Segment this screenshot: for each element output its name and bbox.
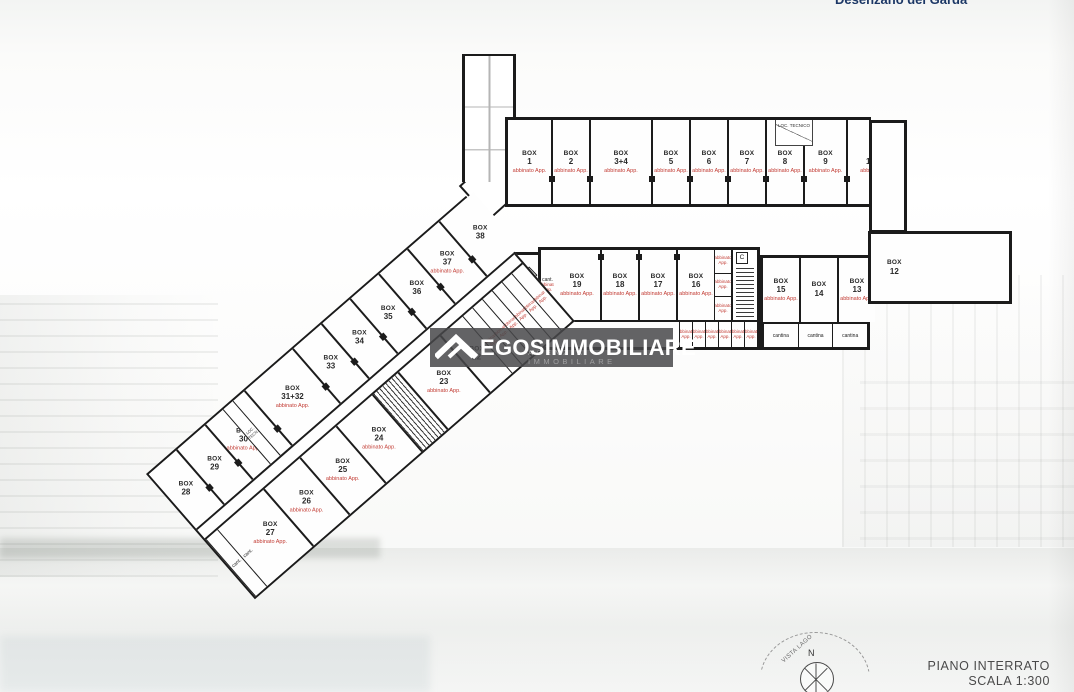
photo-pool-strip: [0, 636, 430, 692]
room-prefix: BOX: [473, 225, 488, 232]
stair-c-hatch: [736, 266, 754, 317]
paired-apartment-note: abbinato App.: [705, 330, 718, 340]
paired-apartment-note: abbinato App.: [678, 291, 714, 298]
room-number: 6: [707, 157, 711, 166]
room-box-12: BOX 12: [868, 231, 1012, 304]
room-number: 34: [355, 337, 364, 346]
room-prefix: BOX: [778, 150, 793, 157]
room-label: BOX 23 abbinato App.: [426, 370, 462, 394]
cellar-cell: abbinato App.: [715, 273, 731, 297]
north-label: N: [808, 648, 815, 658]
room-prefix: BOX: [614, 150, 629, 157]
room-label: BOX 6 abbinato App.: [691, 150, 727, 174]
room-label: BOX 19 abbinato App.: [559, 273, 595, 297]
paired-apartment-note: abbinato App.: [429, 268, 465, 275]
room-label: BOX 24 abbinato App.: [361, 427, 397, 451]
middle-row: cant. abbinato App. BOX 19 abbinato App.…: [541, 250, 757, 320]
agency-roof-icon: [435, 331, 479, 363]
room-label: BOX 18 abbinato App.: [602, 273, 638, 297]
agency-subtitle: AGENZIA IMMOBILIARE: [528, 348, 673, 366]
stairwell-c: C: [731, 250, 757, 320]
room-label: BOX 9 abbinato App.: [808, 150, 844, 174]
cantina-cell: cantina: [798, 324, 833, 347]
room-label: BOX 35: [370, 305, 406, 323]
paired-apartment-note: abbinato App.: [289, 507, 325, 514]
compass-circle: [800, 662, 834, 692]
cellar-label: cant.: [230, 557, 242, 569]
small-cellar-column: abbinato App. abbinato App. abbinato App…: [714, 250, 731, 320]
room-label: BOX 14: [801, 281, 837, 299]
cellar-cell: abbinato App.: [731, 322, 744, 347]
room-prefix: BOX: [522, 150, 537, 157]
cantina-row: cantina cantina cantina: [763, 322, 867, 347]
room-label: BOX 8 abbinato App.: [767, 150, 803, 174]
room-label: BOX 37 abbinato App.: [429, 250, 465, 274]
room-box: BOX 3+4 abbinato App.: [589, 120, 651, 204]
room-number: 37: [443, 258, 452, 267]
paired-apartment-note: abbinato App.: [553, 168, 589, 175]
room-prefix: BOX: [812, 281, 827, 288]
room-prefix: BOX: [570, 273, 585, 280]
room-number: 1: [527, 157, 531, 166]
paired-apartment-note: abbinato App.: [731, 330, 744, 340]
room-number: 36: [413, 287, 422, 296]
technical-room-top: LOC. TECNICO: [775, 120, 813, 146]
room-box: BOX 15 abbinato App.: [763, 258, 799, 322]
middle-wing-right: BOX 15 abbinato App. BOX 14 BOX 13 abbin…: [760, 255, 870, 350]
paired-apartment-note: abbinato App.: [325, 476, 361, 483]
paired-apartment-note: abbinato App.: [767, 168, 803, 175]
room-number: 29: [210, 463, 219, 472]
room-number: 9: [823, 157, 827, 166]
paired-apartment-note: abbinato App.: [512, 168, 548, 175]
paired-apartment-note: abbinato App.: [274, 403, 310, 410]
cantina-label: cantina: [773, 333, 789, 339]
room-number: 13: [853, 285, 862, 294]
room-number: 23: [440, 378, 449, 387]
room-number: 31+32: [281, 392, 303, 401]
photo-hedge-strip: [0, 538, 380, 558]
room-number: 2: [569, 157, 573, 166]
room-label: BOX 7 abbinato App.: [729, 150, 765, 174]
room-prefix: BOX: [564, 150, 579, 157]
room-number: 38: [476, 232, 485, 241]
room-box: BOX 5 abbinato App.: [651, 120, 689, 204]
room-number: 33: [326, 362, 335, 371]
room-label: BOX 34: [342, 330, 378, 348]
scanned-floor-plan-page: BOX 1 abbinato App. BOX 2 abbinato App. …: [0, 0, 1074, 692]
room-prefix: BOX: [774, 278, 789, 285]
floor-title: PIANO INTERRATO: [880, 659, 1050, 674]
cellar-cell: abbinato App.: [715, 296, 731, 320]
paired-apartment-note: abbinato App.: [715, 280, 731, 290]
room-number: 15: [777, 285, 786, 294]
cantina-cell: cantina: [832, 324, 867, 347]
title-block: PIANO INTERRATO SCALA 1:300: [880, 659, 1050, 689]
scale-label: SCALA 1:300: [880, 674, 1050, 689]
location-title: Desenzano del Garda: [835, 0, 1055, 7]
room-number: 8: [783, 157, 787, 166]
paired-apartment-note: abbinato App.: [744, 330, 757, 340]
top-wing-right-cap: [869, 120, 907, 233]
room-prefix: BOX: [440, 250, 455, 257]
paired-apartment-note: abbinato App.: [808, 168, 844, 175]
room-prefix: BOX: [352, 330, 367, 337]
photo-underlay-right-2: [860, 360, 1074, 540]
room-number: 24: [375, 434, 384, 443]
room-box: BOX 18 abbinato App.: [600, 250, 638, 320]
room-box: BOX 14: [799, 258, 837, 322]
room-box: BOX 2 abbinato App.: [551, 120, 589, 204]
cellar-label: cant.: [242, 547, 254, 559]
paired-apartment-note: abbinato App.: [253, 539, 289, 546]
photo-underlay-left: [0, 295, 218, 577]
room-prefix: BOX: [818, 150, 833, 157]
paired-apartment-note: abbinato App.: [603, 168, 639, 175]
top-wing: BOX 1 abbinato App. BOX 2 abbinato App. …: [505, 117, 871, 207]
paired-apartment-note: abbinato App.: [691, 168, 727, 175]
room-label: BOX 25 abbinato App.: [325, 458, 361, 482]
room-label: BOX 5 abbinato App.: [653, 150, 689, 174]
room-prefix: BOX: [850, 278, 865, 285]
room-label: BOX 2 abbinato App.: [553, 150, 589, 174]
room-prefix: BOX: [410, 280, 425, 287]
middle-right-row: BOX 15 abbinato App. BOX 14 BOX 13 abbin…: [763, 258, 867, 322]
paired-apartment-note: abbinato App.: [559, 291, 595, 298]
room-prefix: BOX: [179, 481, 194, 488]
room-prefix: BOX: [664, 150, 679, 157]
room-box: BOX 16 abbinato App.: [676, 250, 714, 320]
room-number: 19: [573, 280, 582, 289]
paired-apartment-note: abbinato App.: [718, 330, 731, 340]
scan-edge-shadow: [1048, 0, 1074, 692]
paired-apartment-note: abbinato App.: [361, 444, 397, 451]
room-prefix: BOX: [651, 273, 666, 280]
cantina-cell: cantina: [763, 324, 798, 347]
room-box: BOX 7 abbinato App.: [727, 120, 765, 204]
room-label: BOX 36: [399, 280, 435, 298]
cantina-label: cantina: [842, 333, 858, 339]
room-label: BOX 3+4 abbinato App.: [603, 150, 639, 174]
room-label: BOX 1 abbinato App.: [512, 150, 548, 174]
paired-apartment-note: abbinato App.: [729, 168, 765, 175]
room-label: BOX 28: [168, 481, 204, 499]
cellar-cell: abbinato App.: [744, 322, 757, 347]
room-number: 3+4: [614, 157, 628, 166]
room-number: 7: [745, 157, 749, 166]
room-box: BOX 1 abbinato App.: [508, 120, 551, 204]
paired-apartment-note: abbinato App.: [640, 291, 676, 298]
cellar-cell: abbinato App.: [705, 322, 718, 347]
paired-apartment-note: abbinato App.: [715, 304, 731, 314]
cellar-cell: abbinato App.: [715, 250, 731, 273]
room-prefix: BOX: [285, 385, 300, 392]
room-label: BOX 17 abbinato App.: [640, 273, 676, 297]
paired-apartment-note: abbinato App.: [715, 256, 731, 266]
cellar-cell: abbinato App.: [718, 322, 731, 347]
room-label: BOX 12: [887, 259, 902, 276]
room-label: BOX 33: [313, 355, 349, 373]
room-prefix: BOX: [740, 150, 755, 157]
room-number: 16: [692, 280, 701, 289]
paired-apartment-note: abbinato App.: [602, 291, 638, 298]
room-label: BOX 38: [462, 225, 498, 243]
paired-apartment-note: abbinato App.: [426, 388, 462, 395]
room-number: 14: [815, 289, 824, 298]
compass-line: [816, 664, 817, 692]
room-number: 25: [338, 466, 347, 475]
room-prefix: BOX: [689, 273, 704, 280]
room-prefix: BOX: [887, 259, 902, 266]
room-prefix: BOX: [613, 273, 628, 280]
room-label: BOX 29: [197, 456, 233, 474]
paired-apartment-note: abbinato App.: [763, 296, 799, 303]
room-number: 35: [384, 312, 393, 321]
cantina-label: cantina: [807, 333, 823, 339]
room-number: 27: [266, 529, 275, 538]
room-label: BOX 15 abbinato App.: [763, 278, 799, 302]
room-number: 5: [669, 157, 673, 166]
paired-apartment-note: abbinato App.: [653, 168, 689, 175]
agency-watermark: EGOSIMMOBILIARE AGENZIA IMMOBILIARE: [430, 328, 673, 367]
room-label: BOX 27 abbinato App.: [253, 521, 289, 545]
room-label: BOX 16 abbinato App.: [678, 273, 714, 297]
room-number: 18: [616, 280, 625, 289]
room-label: BOX 26 abbinato App.: [289, 490, 325, 514]
room-box: BOX 6 abbinato App.: [689, 120, 727, 204]
room-number: 12: [890, 267, 899, 276]
room-prefix: BOX: [702, 150, 717, 157]
room-box: BOX 17 abbinato App.: [638, 250, 676, 320]
room-number: 26: [302, 497, 311, 506]
room-number: 17: [654, 280, 663, 289]
room-label: BOX 31+32 abbinato App.: [274, 385, 310, 409]
room-number: 28: [182, 488, 191, 497]
stair-c-label: C: [736, 252, 748, 264]
